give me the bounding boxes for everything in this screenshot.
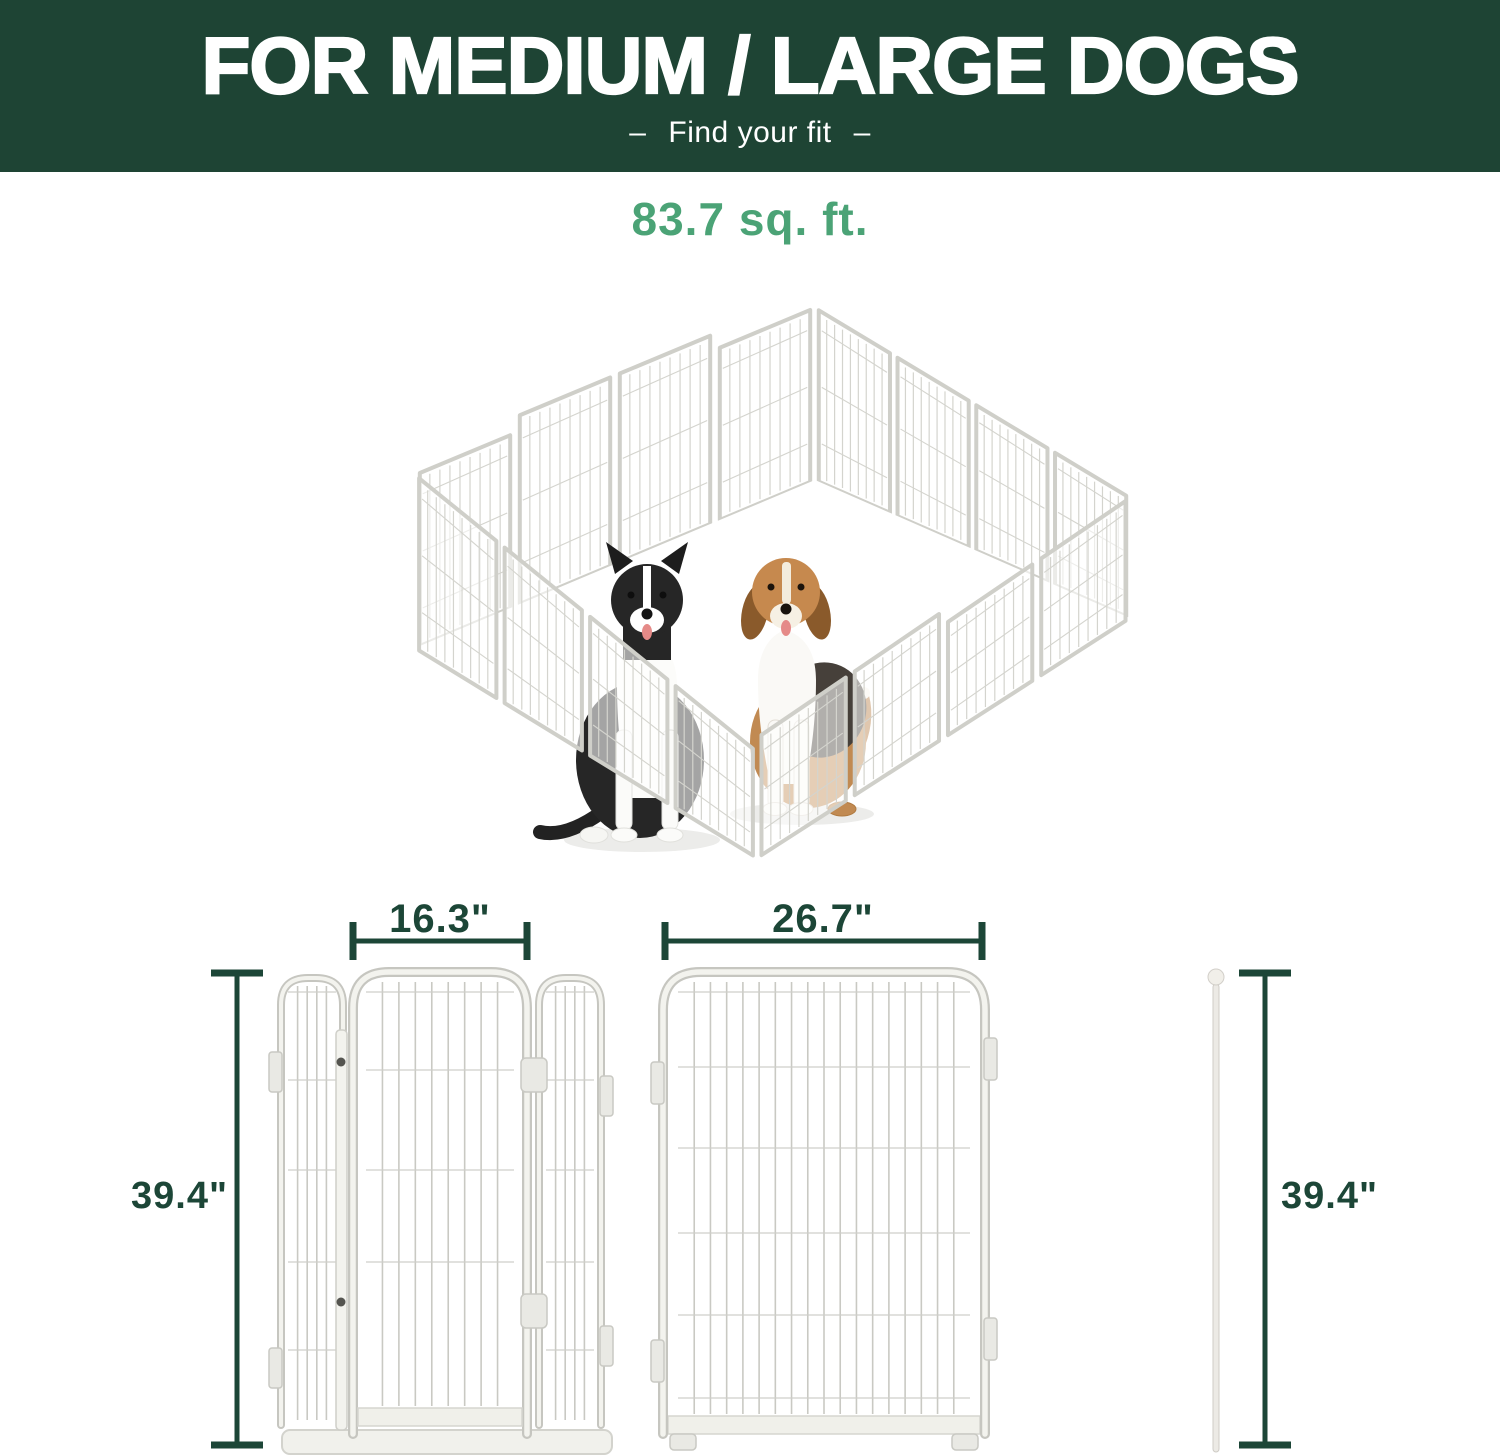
dimension-lines (211, 922, 1291, 1445)
connector-tab (600, 1326, 613, 1366)
connector-tab (651, 1340, 664, 1382)
connector-tab (269, 1348, 282, 1388)
connector-tab (984, 1038, 997, 1080)
panel-width-label: 26.7" (772, 897, 874, 941)
gate-lock-pin (337, 1298, 346, 1307)
product-infographic: FOR MEDIUM / LARGE DOGS – Find your fit … (0, 0, 1500, 1456)
gate-width-label: 16.3" (389, 897, 491, 941)
panel-wires (288, 982, 970, 1420)
connector-tab (651, 1062, 664, 1104)
gate-hinge (521, 1058, 547, 1092)
page-title: FOR MEDIUM / LARGE DOGS (202, 26, 1299, 106)
connector-rod-figure (1208, 969, 1224, 1452)
panel-foot (952, 1434, 978, 1450)
gate-panel-figure (269, 972, 613, 1454)
gate-lock-rod (336, 1030, 347, 1430)
height-label-left: 39.4" (131, 1175, 228, 1217)
area-label: 83.7 sq. ft. (0, 192, 1500, 246)
subtitle-text: Find your fit (668, 118, 831, 148)
header-subtitle: – Find your fit – (607, 118, 893, 148)
connector-tab (269, 1052, 282, 1092)
gate-lock-pin (337, 1058, 346, 1067)
subtitle-dash-left: – (629, 118, 646, 148)
dimension-diagram: 16.3" 26.7" 39.4" 39.4" (0, 880, 1500, 1456)
playpen-isometric-figure (370, 290, 1160, 875)
panel-foot (670, 1434, 696, 1450)
gate-hinge (521, 1294, 547, 1328)
connector-tab (600, 1076, 613, 1116)
gate-kick-bar (358, 1408, 522, 1426)
subtitle-dash-right: – (854, 118, 871, 148)
height-label-right: 39.4" (1281, 1175, 1378, 1217)
connector-tab (984, 1318, 997, 1360)
header-banner: FOR MEDIUM / LARGE DOGS – Find your fit … (0, 0, 1500, 172)
